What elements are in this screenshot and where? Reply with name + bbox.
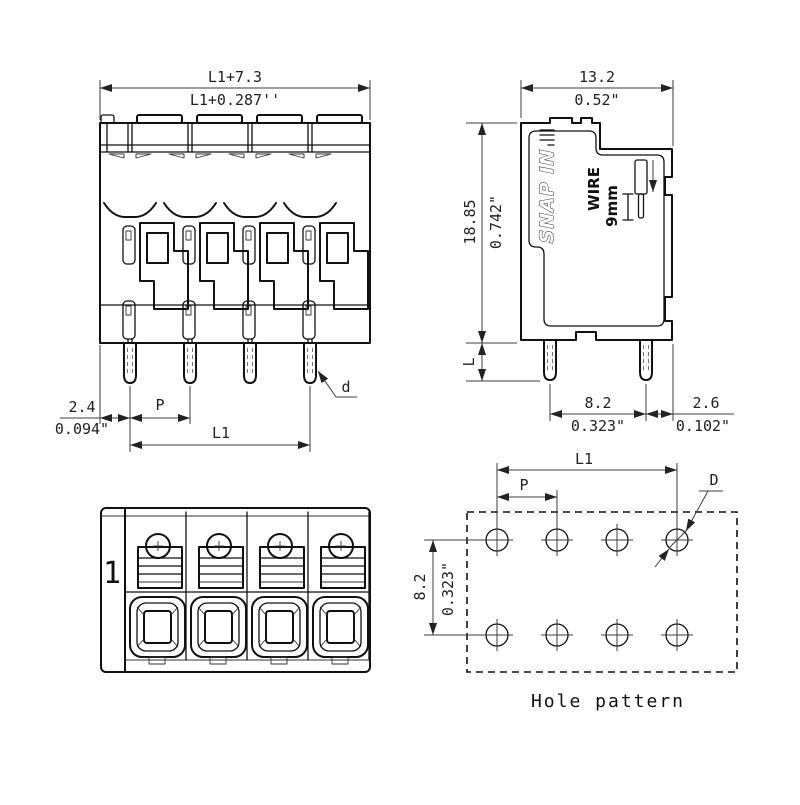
hole	[661, 619, 693, 651]
hole-pattern-caption: Hole pattern	[531, 691, 685, 712]
dim-label-hole-d: D	[709, 471, 718, 489]
technical-drawing: L1+7.3 L1+0.287'' 2.4 0.094" P L1 d SNAP…	[0, 0, 800, 800]
hole	[541, 619, 573, 651]
top-view: 1	[101, 508, 370, 672]
dim-side-pin-length: L	[460, 343, 540, 381]
dim-label-pitch: P	[155, 396, 164, 414]
dim-label-depth-mm: 13.2	[579, 68, 615, 86]
dim-label-edge2-in: 0.102"	[676, 417, 730, 435]
dim-label-hp-row-in: 0.323"	[439, 562, 457, 616]
hole-diameter-leader	[686, 491, 708, 531]
solder-pin	[544, 340, 556, 380]
side-view: SNAP IN WIRE 9mm	[521, 118, 672, 380]
hole-pattern-view: L1 P D 8.2 0.323" Hole pattern	[411, 450, 737, 712]
dim-label-row-in: 0.323"	[571, 417, 625, 435]
pin-diameter-leader	[318, 371, 357, 397]
stripped-wire-icon	[635, 160, 653, 218]
top-pole-2	[186, 512, 247, 664]
dim-label-total-mm: L1+7.3	[208, 68, 262, 86]
dim-label-edge-mm: 2.4	[68, 398, 95, 416]
dim-label-edge2-mm: 2.6	[692, 394, 719, 412]
dim-front-bottom: 2.4 0.094" P L1 d	[55, 345, 357, 452]
solder-pin	[304, 343, 316, 383]
dim-side-bottom: 8.2 0.323" 2.6 0.102"	[550, 344, 734, 435]
dim-label-length: L1	[212, 424, 230, 442]
wire-length-marking: 9mm	[603, 185, 621, 227]
front-left-cap	[101, 115, 114, 123]
solder-pin	[124, 343, 136, 383]
dim-label-hp-row-mm: 8.2	[411, 573, 429, 600]
dim-label-pin-d: d	[341, 378, 350, 396]
solder-pin	[640, 340, 652, 380]
dim-label-row-mm: 8.2	[584, 394, 611, 412]
solder-pin	[184, 343, 196, 383]
hole	[541, 524, 573, 556]
dim-label-height-mm: 18.85	[461, 199, 479, 244]
position-1-marking: 1	[103, 556, 121, 591]
front-view	[100, 115, 370, 383]
hole	[601, 524, 633, 556]
dim-label-pin-length: L	[460, 357, 478, 366]
strip-length-gauge-icon	[623, 194, 633, 220]
dim-label-hp-length: L1	[575, 450, 593, 468]
top-body-outline	[101, 508, 370, 672]
dim-label-edge-in: 0.094"	[55, 420, 109, 438]
top-pole-1	[125, 512, 186, 664]
hole	[601, 619, 633, 651]
dim-side-depth: 13.2 0.52"	[521, 68, 673, 146]
dim-label-total-in: L1+0.287''	[190, 91, 280, 109]
solder-pin	[244, 343, 256, 383]
front-pole-1	[104, 115, 188, 343]
dim-label-depth-in: 0.52"	[574, 91, 619, 109]
top-pole-4	[308, 512, 369, 664]
snap-in-bars-icon	[540, 130, 554, 145]
dim-label-height-in: 0.742"	[487, 195, 505, 249]
dim-front-total-width: L1+7.3 L1+0.287''	[100, 68, 370, 120]
drawing-sheet: L1+7.3 L1+0.287'' 2.4 0.094" P L1 d SNAP…	[0, 0, 800, 800]
dim-side-height: 18.85 0.742"	[461, 123, 517, 343]
snap-in-marking: SNAP IN	[536, 149, 558, 244]
wire-marking: WIRE	[585, 167, 603, 211]
dim-label-hp-pitch: P	[519, 476, 528, 494]
top-pole-3	[247, 512, 308, 664]
